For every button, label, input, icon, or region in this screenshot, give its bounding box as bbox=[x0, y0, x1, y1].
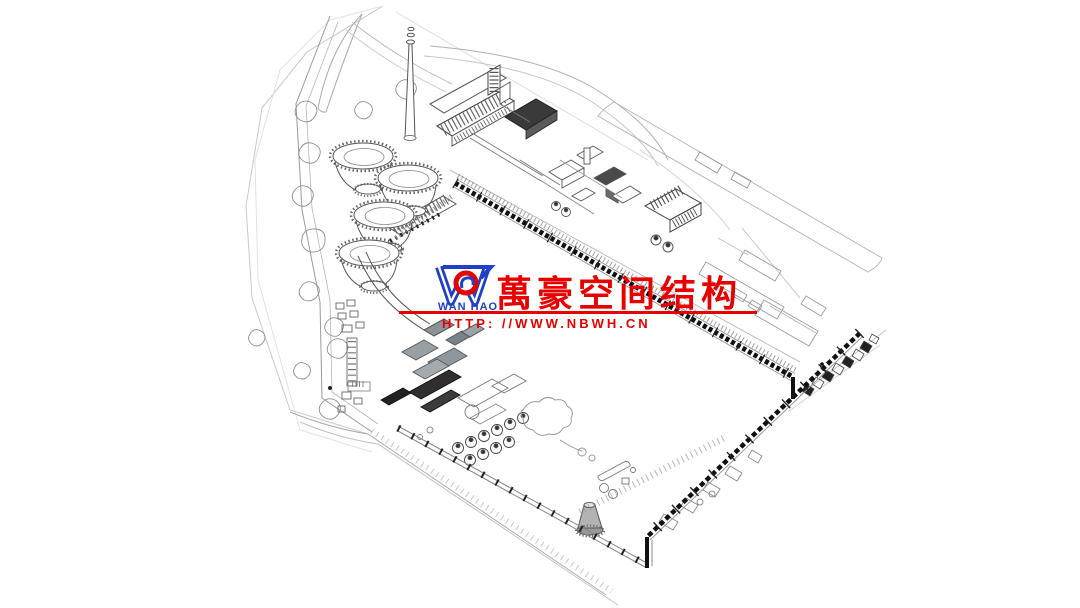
chimney-stack bbox=[404, 27, 416, 140]
auxiliary-plant-cluster bbox=[540, 146, 641, 217]
coal-yard-cluster bbox=[381, 340, 529, 466]
bottom-left-road bbox=[290, 412, 618, 605]
turbine-hall bbox=[430, 70, 514, 146]
site-drawing bbox=[0, 0, 1080, 608]
coal-conveyor-trestle bbox=[450, 170, 800, 399]
pond bbox=[521, 397, 595, 461]
yard-conveyor bbox=[398, 426, 645, 567]
east-plant-building bbox=[645, 152, 751, 252]
left-small-buildings bbox=[328, 300, 370, 412]
site-plan-screenshot: WAN HAO 萬豪空间结构 HTTP: //WWW.NBWH.CN bbox=[0, 0, 1080, 608]
bottom-tank-farm bbox=[598, 461, 636, 498]
right-area-roads bbox=[598, 102, 886, 412]
jetty-trestle bbox=[647, 333, 863, 568]
